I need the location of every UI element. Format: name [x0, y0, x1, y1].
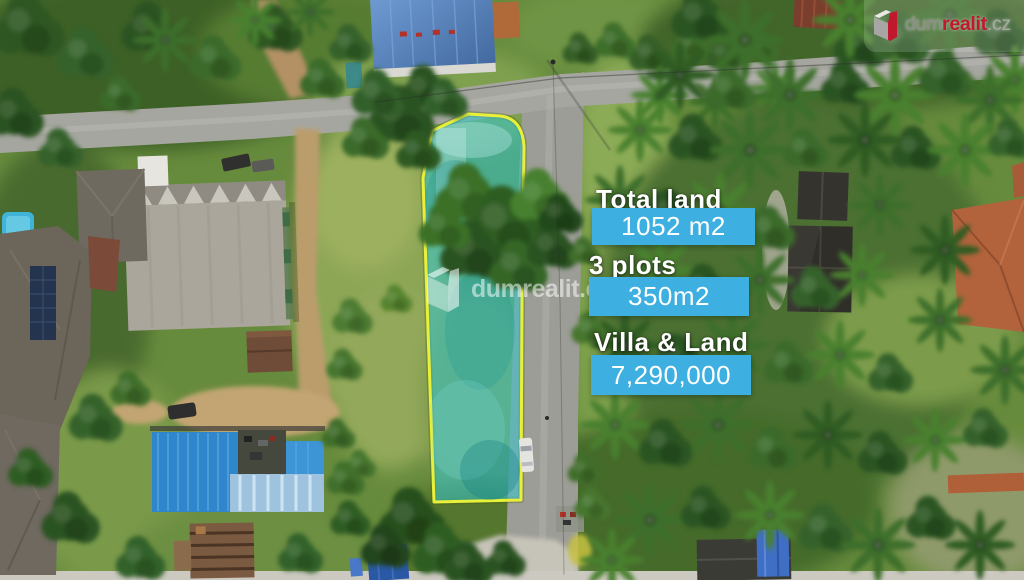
- watermark: dumrealit.cz: [424, 262, 611, 316]
- aerial-photo: dumrealit.cz dumrealit.cz Total land 105…: [0, 0, 1024, 580]
- shed-brown: [246, 330, 292, 373]
- building-orange-annex: [492, 1, 520, 38]
- building-gray-warehouse: [123, 180, 299, 331]
- total-land-value-box: 1052 m2: [592, 208, 755, 245]
- price-label: Villa & Land: [594, 327, 748, 358]
- logo-text-dum: dum: [905, 13, 942, 35]
- watermark-house-icon: [424, 262, 462, 316]
- building-orange-strip-bottomright: [948, 473, 1024, 494]
- building-gray-roof-bottomleft: [0, 414, 60, 575]
- dumrealit-logo: dumrealit.cz: [872, 6, 1011, 42]
- car-dark-top: [221, 153, 251, 172]
- logo-text-realit: realit: [942, 13, 987, 35]
- plots-value-box: 350m2: [589, 277, 749, 316]
- building-dark-roof-right-1: [797, 171, 849, 221]
- building-blue-roof-bottomleft: [150, 426, 325, 512]
- dumrealit-house-icon: [872, 6, 900, 42]
- car-white-road: [519, 438, 534, 473]
- price-value-box: 7,290,000: [591, 355, 751, 395]
- logo-text-cz: .cz: [987, 13, 1011, 35]
- building-red-roof-small: [88, 236, 120, 292]
